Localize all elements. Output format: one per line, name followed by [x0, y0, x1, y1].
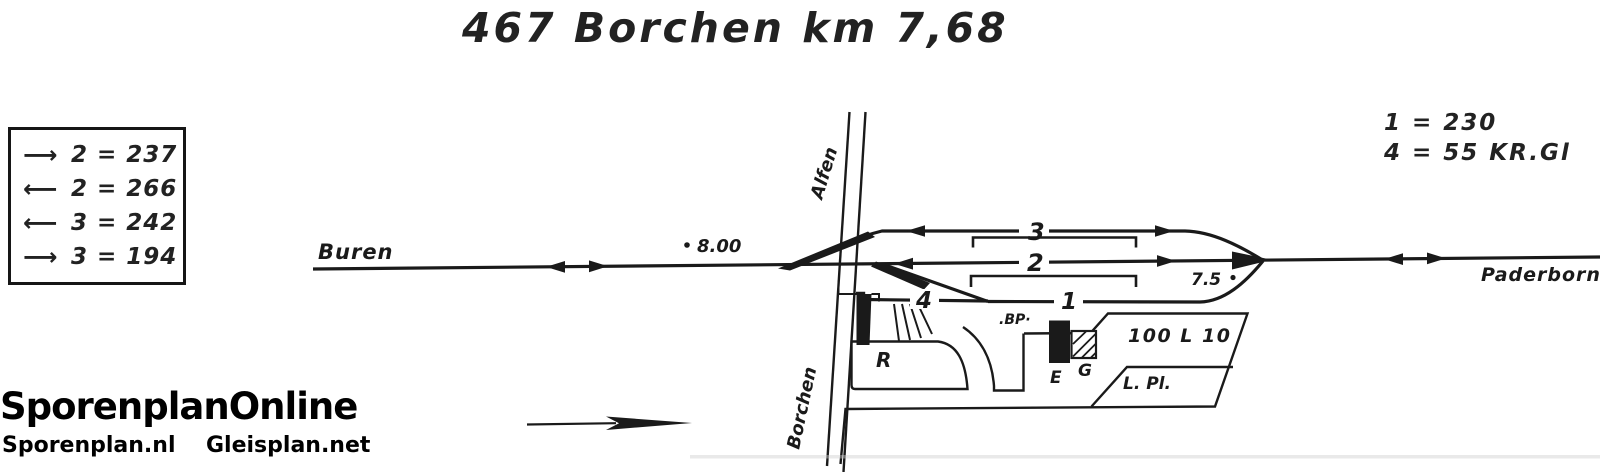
- gleisplan-net-label: Gleisplan.net: [206, 433, 370, 458]
- track-number-gaps: [910, 220, 1083, 312]
- sporenplan-nl-label: Sporenplan.nl: [2, 433, 176, 458]
- track3-right-arrow-icon: [1155, 225, 1174, 237]
- tracks: [313, 231, 1600, 302]
- left-arrow-icon: ⟵: [23, 209, 65, 237]
- track3-left-arrow-icon: [906, 225, 925, 237]
- scan-artifact-band: [690, 455, 1600, 459]
- legend-value: 2 = 237: [71, 142, 177, 168]
- ramp-label: R: [876, 348, 891, 372]
- destination-west-label: Buren: [318, 240, 394, 264]
- legend-box: ⟶ 2 = 237 ⟵ 2 = 266 ⟵ 3 = 242 ⟶ 3 = 194: [8, 127, 186, 285]
- km-west-label: 8.00: [697, 236, 741, 257]
- goods-shed-label: G: [1078, 361, 1092, 381]
- track2-number: 2: [1027, 249, 1044, 277]
- legend-row: ⟵ 2 = 266: [23, 173, 183, 205]
- destination-east-label: Paderborn: [1481, 264, 1600, 286]
- km-dot-east: [1230, 275, 1235, 280]
- legend-value: 3 = 242: [71, 210, 177, 236]
- ramp-building-outline: [852, 342, 968, 390]
- km-east-label: 7.5: [1191, 270, 1221, 290]
- mainline-west-left-arrow-icon: [546, 261, 565, 273]
- track-length-notes: 1 = 230 4 = 55 KR.Gl: [1384, 108, 1571, 168]
- legend-value: 2 = 266: [71, 176, 177, 202]
- track2-right-arrow-icon: [1157, 255, 1176, 267]
- loading-track-label: 100 L 10: [1128, 325, 1231, 347]
- km-dot-west: [684, 242, 690, 248]
- track1-number: 1: [1061, 289, 1077, 315]
- main-line-track: [313, 257, 1600, 269]
- legend-value: 3 = 194: [71, 244, 177, 270]
- mainline-east-left-arrow-icon: [1384, 253, 1403, 265]
- loading-place-label: L. Pl.: [1123, 374, 1171, 394]
- right-arrow-icon: ⟶: [23, 141, 65, 169]
- note-line-2: 4 = 55 KR.Gl: [1384, 138, 1571, 168]
- track4-number: 4: [915, 288, 932, 314]
- track3-number: 3: [1028, 218, 1045, 246]
- legend-row: ⟶ 2 = 237: [23, 139, 183, 171]
- road-south-label: Borchen: [783, 365, 821, 451]
- station-building-label: E: [1050, 368, 1062, 388]
- bp-marker-label: .BP·: [999, 312, 1031, 328]
- forecourt-curve: [963, 327, 1024, 391]
- trackplan-scan: { "title": "467 Borchen km 7,68", "legen…: [0, 0, 1600, 472]
- station-building: [1049, 321, 1070, 364]
- station-area-outlines: [839, 281, 1248, 465]
- right-arrow-icon: ⟶: [23, 243, 65, 271]
- north-arrow-icon: [527, 417, 692, 431]
- road-north-label: Alfen: [806, 145, 842, 204]
- left-arrow-icon: ⟵: [23, 175, 65, 203]
- mainline-east-right-arrow-icon: [1427, 253, 1446, 265]
- mainline-west-right-arrow-icon: [589, 260, 608, 272]
- note-line-1: 1 = 230: [1384, 108, 1571, 138]
- legend-row: ⟶ 3 = 194: [23, 241, 183, 273]
- legend-row: ⟵ 3 = 242: [23, 207, 183, 239]
- sporenplanonline-logo: SporenplanOnline: [0, 385, 357, 428]
- platform-track2: [971, 276, 1136, 287]
- page-title: 467 Borchen km 7,68: [462, 4, 1009, 52]
- loading-ramp-edge: [857, 294, 872, 345]
- platform-track3: [973, 238, 1136, 248]
